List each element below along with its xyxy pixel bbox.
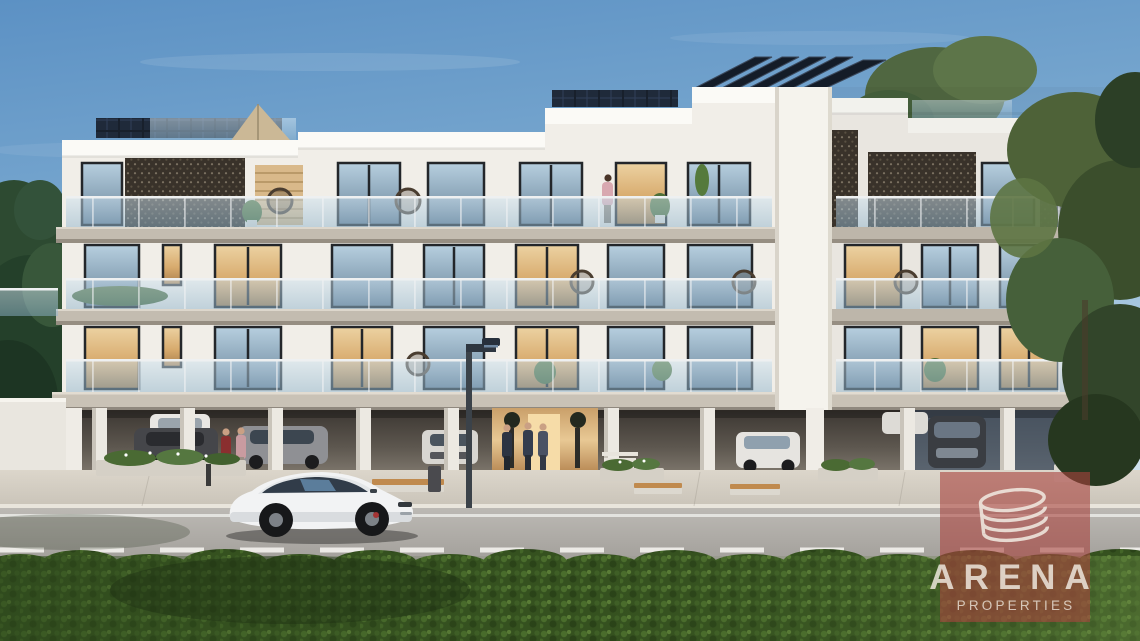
bollard [206, 464, 211, 486]
watermark-badge: ARENA PROPERTIES [929, 472, 1098, 622]
glass-balustrades [66, 196, 1104, 392]
watermark-brand: ARENA [929, 558, 1098, 597]
architectural-render: ARENA PROPERTIES [0, 0, 1140, 641]
render-canvas: ARENA PROPERTIES [0, 0, 1140, 641]
trash-bin [428, 466, 441, 492]
apartment-building [52, 57, 1108, 473]
watermark-subtitle: PROPERTIES [957, 598, 1076, 613]
